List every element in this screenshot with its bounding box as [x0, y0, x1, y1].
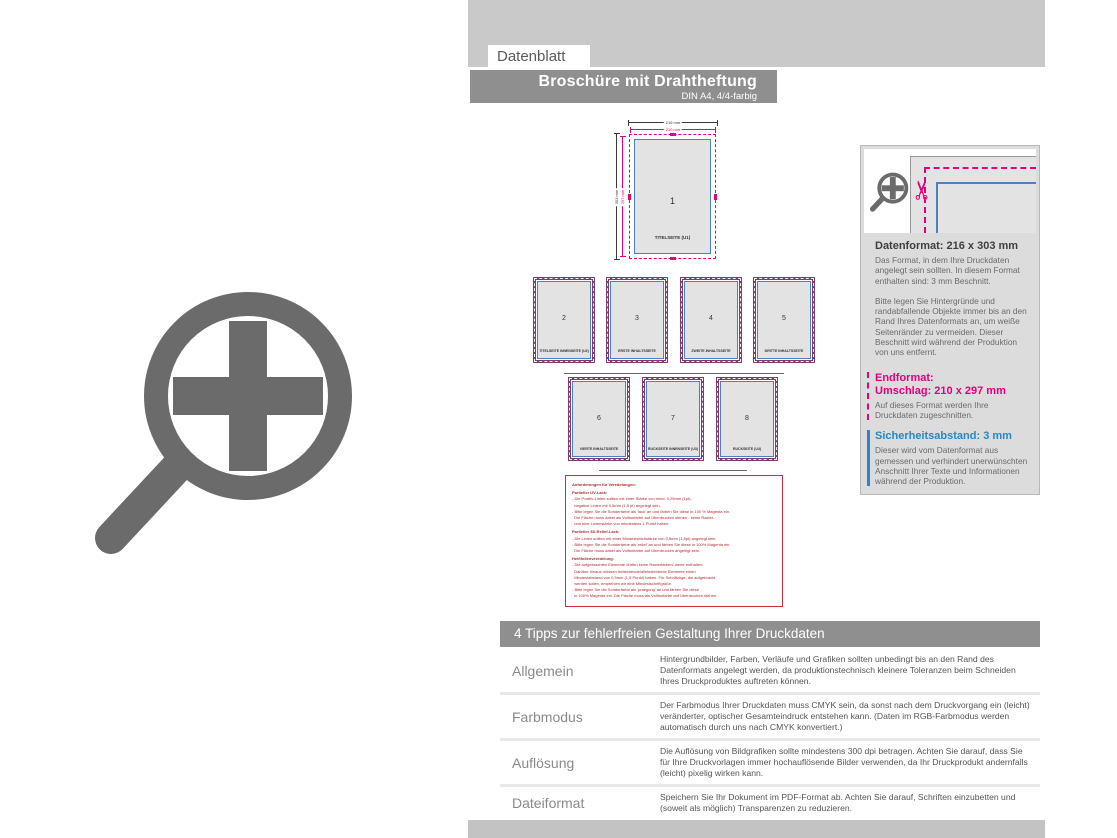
note-line: Die Fläche muss dabei als Volltonfarbe a…	[572, 548, 776, 554]
title-page-area: 1 TITELSEITE (U1)	[634, 139, 711, 254]
corner-detail-box: ✂	[864, 149, 1036, 233]
sicherheitsabstand-body: Dieser wird vom Datenformat aus gemessen…	[875, 445, 1029, 486]
page-box-3: 3 ERSTE INHALTSSEITE	[606, 277, 668, 363]
datasheet-page: Datenblatt Broschüre mit Drahtheftung DI…	[0, 0, 1117, 838]
page-title: Broschüre mit Drahtheftung	[470, 72, 757, 91]
page-box-5: 5 DRITTE INHALTSSEITE	[753, 277, 815, 363]
tips-header: 4 Tipps zur fehlerfreien Gestaltung Ihre…	[500, 621, 1040, 647]
note-line: Anforderungen für Veredelungen:	[572, 482, 776, 488]
zoom-plus-icon	[95, 280, 363, 558]
page-corner-detail: ✂	[910, 156, 1036, 233]
format-info-panel: ✂ Datenformat: 216 x 303 mm Das Format, …	[860, 145, 1040, 495]
format-info-text: Datenformat: 216 x 303 mm Das Format, in…	[875, 240, 1029, 486]
page-caption: ZWEITE INHALTSSEITE	[685, 349, 737, 353]
datasheet-panel: Datenblatt Broschüre mit Drahtheftung DI…	[468, 0, 1045, 838]
page-caption: TITELSEITE (U1)	[635, 235, 710, 240]
note-line: in 100% Magenta ein. Die Fläche muss als…	[572, 593, 776, 599]
page-caption: TITELSEITE INNENSEITE (U2)	[538, 349, 590, 353]
title-page-box: 1 TITELSEITE (U1)	[629, 134, 716, 259]
page-box-8: 8 RÜCKSEITE (U4)	[716, 377, 778, 461]
safety-block: Sicherheitsabstand: 3 mm Dieser wird vom…	[867, 430, 1029, 486]
tip-label: Farbmodus	[500, 700, 660, 733]
title-bar: Broschüre mit Drahtheftung DIN A4, 4/4-f…	[470, 70, 777, 103]
dim-width-inner: 210 mm	[630, 129, 716, 130]
zoom-plus-icon-small	[870, 171, 910, 212]
datenformat-body: Das Format, in dem Ihre Druckdaten angel…	[875, 255, 1029, 286]
page-box-2: 2 TITELSEITE INNENSEITE (U2)	[533, 277, 595, 363]
scissors-icon: ✂	[910, 179, 936, 201]
page-number: 7	[647, 415, 699, 422]
tip-label: Auflösung	[500, 746, 660, 779]
page-caption: ERSTE INHALTSSEITE	[611, 349, 663, 353]
page-box-7: 7 RÜCKSEITE INNENSEITE (U3)	[642, 377, 704, 461]
endformat-body: Auf dieses Format werden Ihre Druckdaten…	[875, 400, 1029, 421]
page-caption: RÜCKSEITE INNENSEITE (U3)	[647, 447, 699, 451]
spread-line	[599, 470, 673, 471]
page-caption: VIERTE INHALTSSEITE	[573, 447, 625, 451]
dim-width-outer: 216 mm	[628, 122, 718, 123]
datenblatt-tab: Datenblatt	[488, 45, 590, 68]
page-caption: RÜCKSEITE (U4)	[721, 447, 773, 451]
tip-text: Speichern Sie Ihr Dokument im PDF-Format…	[660, 792, 1040, 814]
page-number: 4	[685, 315, 737, 322]
tip-text: Hintergrundbilder, Farben, Verläufe und …	[660, 654, 1040, 687]
datenformat-body2: Bitte legen Sie Hintergründe und randabf…	[875, 296, 1029, 358]
dim-height-outer: 303 mm	[616, 133, 617, 260]
page-box-4: 4 ZWEITE INHALTSSEITE	[680, 277, 742, 363]
tips-table: Allgemein Hintergrundbilder, Farben, Ver…	[500, 649, 1040, 819]
tip-label: Dateiformat	[500, 792, 660, 814]
datenformat-title: Datenformat: 216 x 303 mm	[875, 240, 1029, 252]
page-caption: DRITTE INHALTSSEITE	[758, 349, 810, 353]
tip-row-dateiformat: Dateiformat Speichern Sie Ihr Dokument i…	[500, 787, 1040, 819]
dim-height-inner: 297 mm	[622, 136, 623, 257]
endformat-title: Endformat:	[875, 372, 1029, 385]
tip-row-aufloesung: Auflösung Die Auflösung von Bildgrafiken…	[500, 741, 1040, 784]
page-number: 5	[758, 315, 810, 322]
page-number: 6	[573, 415, 625, 422]
cut-line-horizontal	[924, 167, 1036, 169]
tip-text: Die Auflösung von Bildgrafiken sollte mi…	[660, 746, 1040, 779]
tip-row-farbmodus: Farbmodus Der Farbmodus Ihrer Druckdaten…	[500, 695, 1040, 738]
safety-line-horizontal	[936, 182, 1036, 184]
page-subtitle: DIN A4, 4/4-farbig	[470, 91, 757, 102]
page-number: 2	[538, 315, 590, 322]
spread-line	[564, 373, 637, 374]
tip-row-allgemein: Allgemein Hintergrundbilder, Farben, Ver…	[500, 649, 1040, 692]
tip-text: Der Farbmodus Ihrer Druckdaten muss CMYK…	[660, 700, 1040, 733]
finishing-notes-box: Anforderungen für Veredelungen:Partielle…	[565, 475, 783, 607]
spread-line	[673, 470, 747, 471]
endformat-size: Umschlag: 210 x 297 mm	[875, 385, 1029, 398]
sicherheitsabstand-title: Sicherheitsabstand: 3 mm	[875, 430, 1029, 443]
bottom-strip	[468, 820, 1045, 838]
spread-line	[637, 373, 711, 374]
page-number: 3	[611, 315, 663, 322]
endformat-block: Endformat: Umschlag: 210 x 297 mm Auf di…	[867, 372, 1029, 421]
spread-line	[711, 373, 784, 374]
tip-label: Allgemein	[500, 654, 660, 687]
page-box-6: 6 VIERTE INHALTSSEITE	[568, 377, 630, 461]
note-line: und eine Linienstärke von mindestens 1 P…	[572, 521, 776, 527]
page-number: 1	[635, 196, 710, 206]
page-number: 8	[721, 415, 773, 422]
